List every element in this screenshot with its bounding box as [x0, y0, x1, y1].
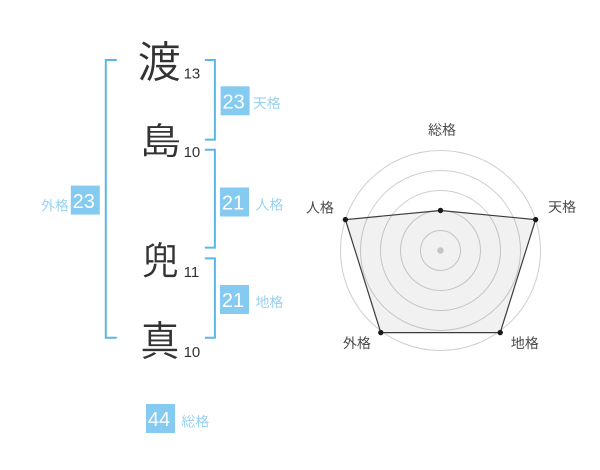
svg-text:10: 10	[184, 144, 201, 161]
svg-text:23: 23	[73, 191, 95, 213]
svg-text:13: 13	[184, 66, 201, 83]
svg-text:10: 10	[184, 344, 201, 361]
svg-text:21: 21	[222, 193, 244, 215]
svg-text:21: 21	[222, 290, 244, 312]
svg-text:23: 23	[222, 92, 244, 114]
svg-text:11: 11	[184, 264, 200, 281]
svg-text:44: 44	[148, 409, 170, 431]
